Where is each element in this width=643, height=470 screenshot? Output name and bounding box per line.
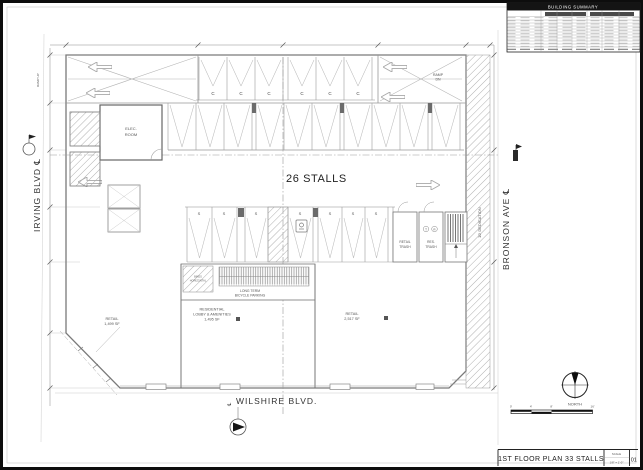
storefront-door [146,384,166,390]
room-label-retail-left: RETAIL [105,317,118,321]
ramp-dn-label: DN [435,78,441,82]
table-group-header [590,12,634,16]
stall-label-standard: S [299,211,302,216]
north-label: NORTH [568,402,582,407]
storefront-door [416,384,434,390]
bike-storage-label: BIKES [194,275,202,279]
table-group-header [545,12,586,16]
stall-label-standard: S [329,211,332,216]
street-label-irving: IRVING BLVD ℄ [32,158,42,232]
stall-label-standard: S [198,211,201,216]
column [236,317,240,321]
table-total-row [508,47,640,52]
room-label-lobby: 1,495 SF [204,318,220,322]
stall-count-label: 26 STALLS [286,173,347,185]
scale-label: SCALE [612,452,621,456]
room-label-retail-right: 2,517 SF [344,317,360,321]
storefront-door [220,384,240,390]
storefront-door [330,384,350,390]
summary-table-title: BUILDING SUMMARY [548,5,598,10]
room-label-retail-trash: TRASH [399,245,411,249]
stall-symbol-icon [296,220,307,232]
stall-label-standard: S [352,211,355,216]
sheet-frame [2,2,642,469]
room-label-elec: ROOM [125,132,137,137]
street-label-wilshire: WILSHIRE BLVD. [236,396,317,406]
stall-label-standard: S [223,211,226,216]
ramp-up-label: RAMP UP [36,73,40,87]
stair-east [445,212,467,262]
sheet-title: 1ST FLOOR PLAN 33 STALLS [498,456,604,463]
room-label-retail-right: RETAIL [345,312,358,316]
room-label-elec: ELEC. [125,126,137,131]
column [384,316,388,320]
building-summary-table: BUILDING SUMMARY [507,3,640,52]
ramp-dn-label: RAMP [433,73,444,77]
table-body-rows [508,17,640,48]
dedication-label: 10' DEDICATION [477,207,482,238]
room-label-retail-trash: RETAIL [399,240,410,244]
hatched-stall [268,207,288,262]
scale-tick-16: 16' [591,405,595,409]
room-label-bike: LONG TERM [240,289,260,293]
bike-storage-label: HORIZONTAL [190,279,207,283]
scale-value: 1/8" = 1'-0" [610,461,624,465]
elec-room: ELEC. ROOM [100,105,162,160]
room-label-retail-left: 1,499 SF [104,322,120,326]
sheet-number: 01 [631,458,637,464]
shaft-west-1 [70,112,100,146]
shaft-west-2 [70,152,100,186]
room-label-res-trash: TRASH [425,245,437,249]
bike-parking-room: BIKES HORIZONTAL LONG TERM BICYCLE PARKI… [181,264,315,300]
room-label-bike: BICYCLE PARKING [235,294,266,298]
floor-plan-svg: BUILDING SUMMARY [0,0,643,470]
stall-label-standard: S [255,211,258,216]
room-label-lobby: LOBBY & AMENITIES [193,313,231,317]
drawing-sheet: BUILDING SUMMARY [0,0,643,470]
stall-label-standard: S [375,211,378,216]
room-label-res-trash: RES. [427,240,435,244]
street-label-bronson: BRONSON AVE ℄ [501,188,511,270]
room-label-lobby: RESIDENTIAL [200,308,225,312]
keynote-t: T [425,227,427,231]
